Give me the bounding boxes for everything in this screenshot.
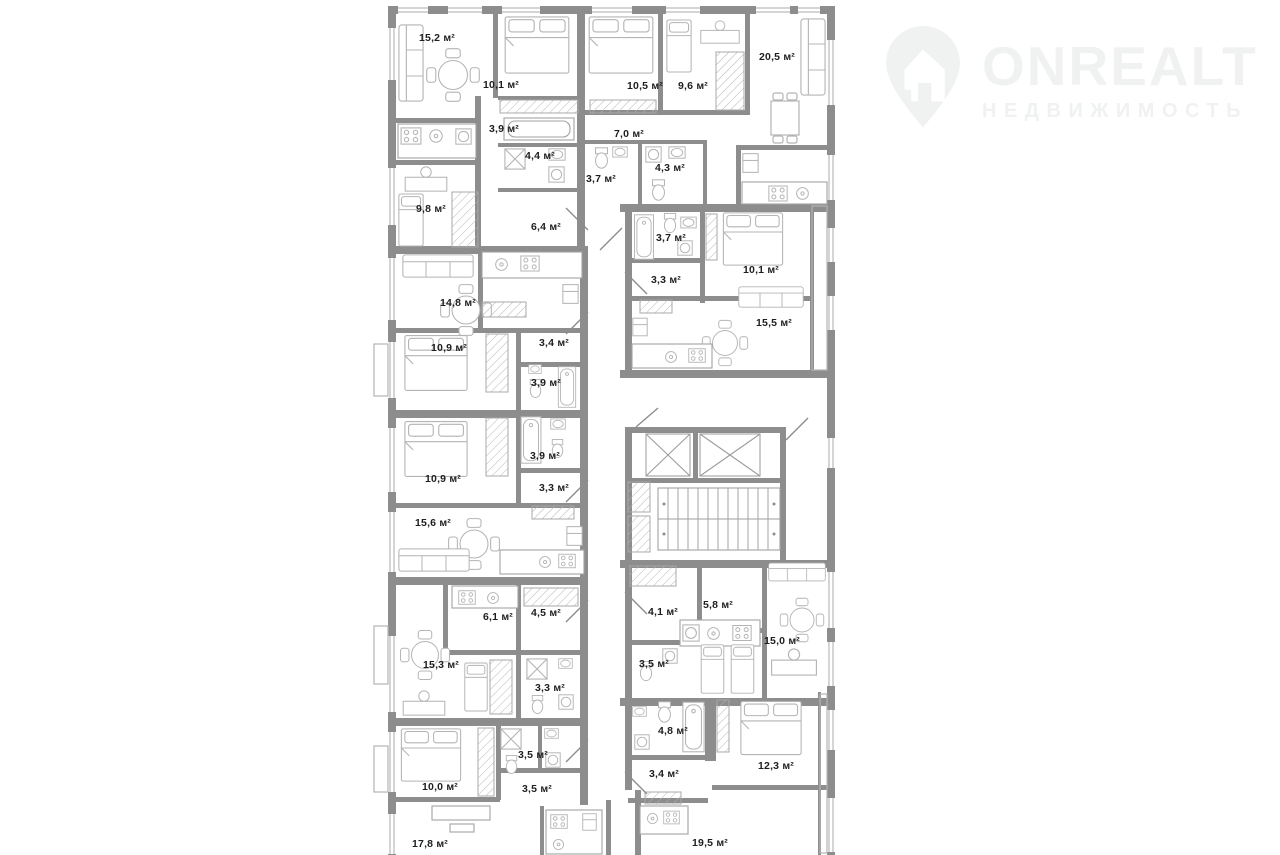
room-area-label: 10,1 м² <box>483 79 519 91</box>
room-area-label: 3,4 м² <box>539 337 569 349</box>
brand-logo: ONREALT НЕДВИЖИМОСТЬ <box>872 26 1258 130</box>
room-area-label: 10,0 м² <box>422 781 458 793</box>
room-area-label: 9,6 м² <box>678 80 708 92</box>
room-area-label: 17,8 м² <box>412 838 448 850</box>
room-area-label: 10,1 м² <box>743 264 779 276</box>
room-area-label: 15,2 м² <box>419 32 455 44</box>
room-area-label: 3,7 м² <box>656 232 686 244</box>
room-area-label: 15,3 м² <box>423 659 459 671</box>
room-area-label: 15,0 м² <box>764 635 800 647</box>
room-area-label: 4,4 м² <box>525 150 555 162</box>
room-area-label: 4,5 м² <box>531 607 561 619</box>
room-area-label: 10,5 м² <box>627 80 663 92</box>
screenshot-root: 15,2 м²10,1 м²10,5 м²9,6 м²20,5 м²3,9 м²… <box>0 0 1280 855</box>
room-area-label: 3,5 м² <box>522 783 552 795</box>
room-area-label: 3,9 м² <box>489 123 519 135</box>
brand-text: ONREALT НЕДВИЖИМОСТЬ <box>982 26 1258 123</box>
room-area-label: 3,7 м² <box>586 173 616 185</box>
brand-name: ONREALT <box>982 42 1258 90</box>
room-area-label: 3,9 м² <box>530 450 560 462</box>
room-area-label: 3,9 м² <box>531 377 561 389</box>
room-area-label: 3,3 м² <box>535 682 565 694</box>
logo-pin-icon <box>872 26 974 130</box>
room-area-label: 7,0 м² <box>614 128 644 140</box>
room-area-label: 10,9 м² <box>425 473 461 485</box>
room-area-label: 5,8 м² <box>703 599 733 611</box>
room-area-label: 3,5 м² <box>518 749 548 761</box>
room-area-label: 20,5 м² <box>759 51 795 63</box>
room-area-label: 3,5 м² <box>639 658 669 670</box>
brand-tagline: НЕДВИЖИМОСТЬ <box>982 100 1258 123</box>
room-area-label: 19,5 м² <box>692 837 728 849</box>
room-area-label: 3,3 м² <box>651 274 681 286</box>
room-area-label: 15,6 м² <box>415 517 451 529</box>
room-area-label: 10,9 м² <box>431 342 467 354</box>
room-area-label: 6,4 м² <box>531 221 561 233</box>
room-area-label: 12,3 м² <box>758 760 794 772</box>
room-area-label: 9,8 м² <box>416 203 446 215</box>
room-area-label: 4,3 м² <box>655 162 685 174</box>
room-area-label: 14,8 м² <box>440 297 476 309</box>
room-area-label: 3,4 м² <box>649 768 679 780</box>
room-area-label: 6,1 м² <box>483 611 513 623</box>
room-area-label: 4,1 м² <box>648 606 678 618</box>
room-area-label: 3,3 м² <box>539 482 569 494</box>
room-area-label: 4,8 м² <box>658 725 688 737</box>
room-area-label: 15,5 м² <box>756 317 792 329</box>
